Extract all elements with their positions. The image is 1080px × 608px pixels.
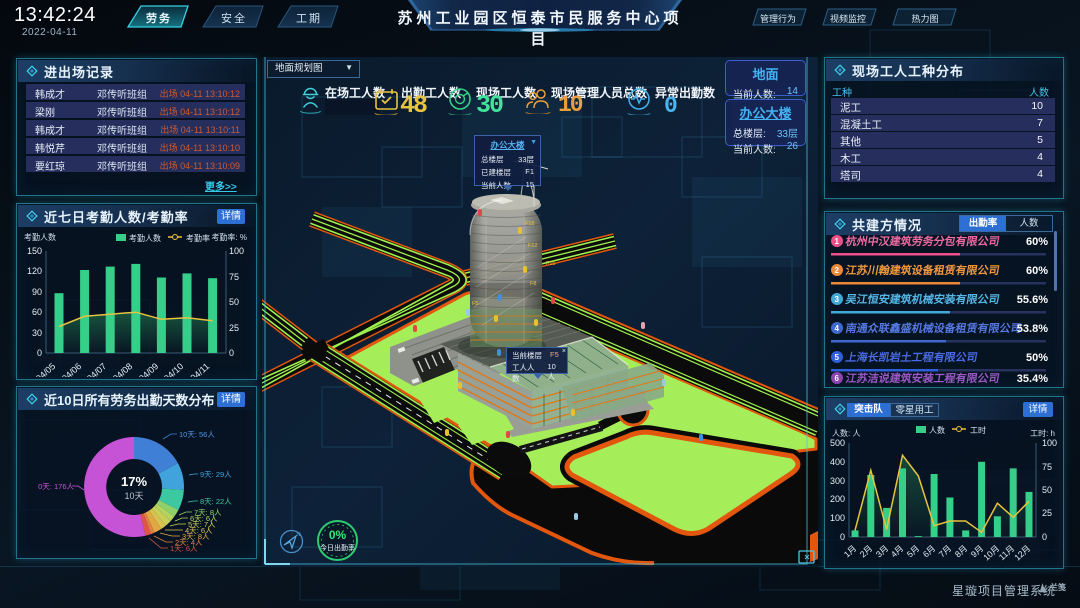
svg-text:4月: 4月 bbox=[889, 543, 906, 559]
svg-text:0: 0 bbox=[37, 348, 42, 358]
svg-text:04/05: 04/05 bbox=[34, 361, 57, 377]
svg-text:兰笺: 兰笺 bbox=[1050, 582, 1066, 592]
svg-text:100: 100 bbox=[229, 246, 244, 256]
svg-text:25: 25 bbox=[229, 323, 239, 333]
svg-text:上海长凯岩土工程有限公司: 上海长凯岩土工程有限公司 bbox=[844, 350, 978, 364]
svg-text:12月: 12月 bbox=[1012, 543, 1032, 562]
svg-text:5月: 5月 bbox=[905, 543, 922, 559]
svg-text:F18: F18 bbox=[525, 221, 534, 227]
svg-text:9天: 29人: 9天: 29人 bbox=[200, 470, 232, 479]
svg-text:50: 50 bbox=[1042, 485, 1052, 495]
svg-text:3: 3 bbox=[835, 295, 840, 304]
svg-text:04/07: 04/07 bbox=[85, 361, 108, 377]
svg-text:1: 1 bbox=[835, 237, 840, 246]
svg-text:2: 2 bbox=[835, 266, 840, 275]
svg-text:17%: 17% bbox=[121, 474, 147, 489]
svg-text:人数: 人: 人数: 人 bbox=[832, 428, 860, 438]
svg-text:4: 4 bbox=[835, 324, 840, 333]
svg-text:04/09: 04/09 bbox=[137, 361, 160, 377]
svg-text:53.8%: 53.8% bbox=[1017, 323, 1048, 335]
svg-text:今日出勤率: 今日出勤率 bbox=[320, 543, 355, 552]
svg-text:杭州中汉建筑劳务分包有限公司: 杭州中汉建筑劳务分包有限公司 bbox=[844, 234, 1000, 248]
svg-text:7月: 7月 bbox=[937, 543, 954, 559]
svg-text:200: 200 bbox=[830, 494, 845, 504]
svg-text:60%: 60% bbox=[1026, 236, 1048, 248]
svg-text:400: 400 bbox=[830, 457, 845, 467]
svg-text:300: 300 bbox=[830, 476, 845, 486]
svg-text:考勤率: %: 考勤率: % bbox=[211, 232, 247, 242]
svg-text:0: 0 bbox=[840, 532, 845, 542]
svg-text:F8: F8 bbox=[530, 281, 536, 287]
svg-text:55.6%: 55.6% bbox=[1017, 294, 1048, 306]
svg-text:04/10: 04/10 bbox=[162, 361, 185, 377]
svg-text:0天: 176人: 0天: 176人 bbox=[38, 482, 74, 491]
svg-text:75: 75 bbox=[1042, 462, 1052, 472]
svg-text:35.4%: 35.4% bbox=[1017, 373, 1048, 385]
svg-text:60: 60 bbox=[32, 307, 42, 317]
svg-text:25: 25 bbox=[1042, 508, 1052, 518]
svg-text:N: N bbox=[297, 532, 301, 538]
svg-text:6: 6 bbox=[835, 374, 840, 383]
svg-text:60%: 60% bbox=[1026, 265, 1048, 277]
svg-text:04/08: 04/08 bbox=[111, 361, 134, 377]
svg-text:3月: 3月 bbox=[874, 543, 891, 559]
svg-text:江苏川翰建筑设备租赁有限公司: 江苏川翰建筑设备租赁有限公司 bbox=[844, 263, 1000, 277]
svg-text:0: 0 bbox=[229, 348, 234, 358]
svg-text:人数: 人数 bbox=[929, 425, 945, 435]
svg-text:0: 0 bbox=[1042, 532, 1047, 542]
svg-text:120: 120 bbox=[27, 266, 42, 276]
svg-text:工时: h: 工时: h bbox=[1030, 428, 1055, 438]
svg-text:90: 90 bbox=[32, 287, 42, 297]
svg-text:F15: F15 bbox=[546, 261, 555, 267]
svg-text:50%: 50% bbox=[1026, 352, 1048, 364]
svg-text:F5: F5 bbox=[472, 301, 478, 307]
svg-text:江苏洁说建筑安装工程有限公司: 江苏洁说建筑安装工程有限公司 bbox=[844, 371, 1000, 385]
svg-text:考勤人数: 考勤人数 bbox=[129, 233, 161, 243]
svg-text:1月: 1月 bbox=[842, 543, 859, 559]
svg-text:11月: 11月 bbox=[997, 543, 1017, 562]
svg-text:10天: 10天 bbox=[124, 491, 143, 501]
svg-text:100: 100 bbox=[1042, 438, 1057, 448]
svg-text:150: 150 bbox=[27, 246, 42, 256]
svg-text:04/11: 04/11 bbox=[188, 361, 211, 377]
svg-text:04/06: 04/06 bbox=[60, 361, 83, 377]
svg-text:30: 30 bbox=[32, 328, 42, 338]
svg-text:考勤率: 考勤率 bbox=[186, 233, 210, 243]
svg-text:1天: 6人: 1天: 6人 bbox=[170, 544, 198, 553]
svg-text:8天: 22人: 8天: 22人 bbox=[200, 497, 232, 506]
svg-text:50: 50 bbox=[229, 297, 239, 307]
svg-text:500: 500 bbox=[830, 438, 845, 448]
svg-text:100: 100 bbox=[830, 513, 845, 523]
svg-text:2月: 2月 bbox=[858, 543, 875, 559]
svg-text:南通众联鑫盛机械设备租赁有限公司: 南通众联鑫盛机械设备租赁有限公司 bbox=[844, 321, 1022, 335]
svg-text:10天: 56人: 10天: 56人 bbox=[179, 430, 215, 439]
svg-text:工时: 工时 bbox=[970, 425, 986, 435]
svg-text:6月: 6月 bbox=[921, 543, 938, 559]
svg-text:8月: 8月 bbox=[953, 543, 970, 559]
svg-text:75: 75 bbox=[229, 272, 239, 282]
svg-text:0%: 0% bbox=[329, 528, 347, 542]
svg-text:考勤人数: 考勤人数 bbox=[24, 232, 56, 242]
svg-text:吴江恒安建筑机械安装有限公司: 吴江恒安建筑机械安装有限公司 bbox=[844, 292, 1000, 306]
svg-text:5: 5 bbox=[835, 353, 840, 362]
svg-text:F12: F12 bbox=[528, 243, 537, 249]
